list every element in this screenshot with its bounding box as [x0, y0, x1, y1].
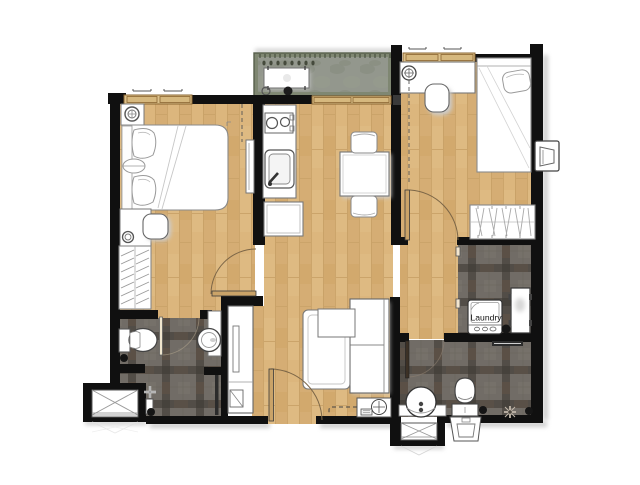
svg-text:Laundry: Laundry [471, 313, 503, 323]
